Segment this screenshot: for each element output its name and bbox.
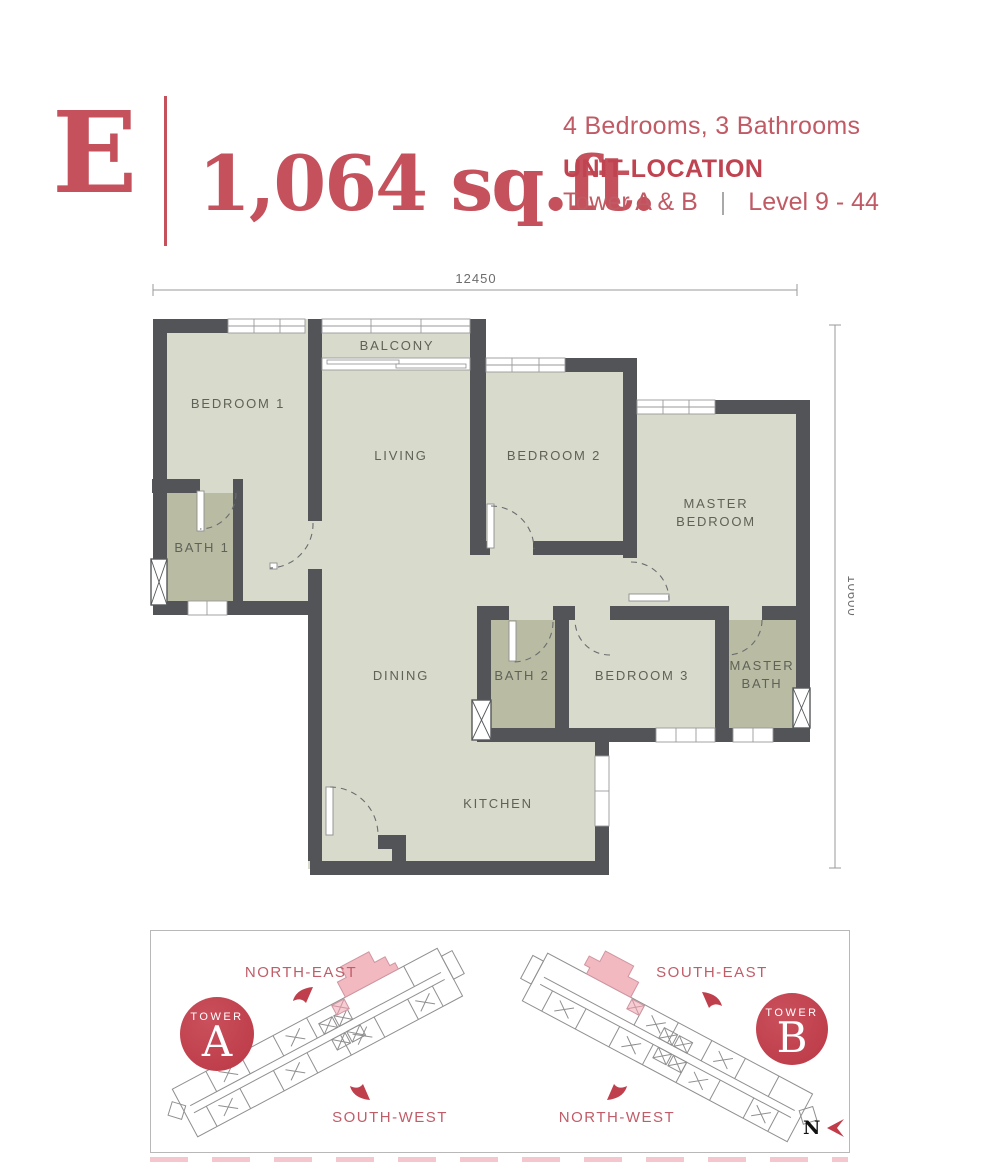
separator: | <box>720 188 727 217</box>
flag-icon-b-nw <box>606 1079 628 1101</box>
room-label-bedroom-1: BEDROOM 1 <box>191 396 285 411</box>
compass-n-label: N <box>803 1117 820 1139</box>
bottom-dashed-accent <box>150 1157 848 1162</box>
direction-label-b-top: SOUTH-EAST <box>602 964 822 981</box>
header-divider <box>164 96 167 246</box>
north-arrow-icon <box>823 1117 845 1139</box>
dimension-width-label: 12450 <box>455 271 496 286</box>
direction-label-b-bottom: NORTH-WEST <box>507 1109 727 1126</box>
floorplan-sheet: E 1,064 sq.ft. 4 Bedrooms, 3 Bathrooms U… <box>0 0 1000 1174</box>
floor-plan: 12450 10600 <box>146 268 854 884</box>
north-compass: N <box>803 1117 845 1139</box>
room-label-bedroom-2: BEDROOM 2 <box>507 448 601 463</box>
header-right: 4 Bedrooms, 3 Bathrooms UNIT LOCATION To… <box>563 112 879 217</box>
flag-icon-b-se <box>701 991 723 1013</box>
room-label-dining: DINING <box>373 668 429 683</box>
room-label-master-bedroom-1: MASTER <box>684 496 749 511</box>
room-label-bath-2: BATH 2 <box>494 668 549 683</box>
sliding-door <box>322 358 470 370</box>
unit-type-letter: E <box>52 98 137 210</box>
bed-bath-count: 4 Bedrooms, 3 Bathrooms <box>563 112 879 141</box>
tower-range: Tower A & B <box>563 188 698 217</box>
tower-b-badge-letter: B <box>756 1019 828 1057</box>
floor-plan-svg: 12450 10600 <box>146 268 854 884</box>
flag-icon-a-sw <box>349 1079 371 1101</box>
room-label-kitchen: KITCHEN <box>463 796 533 811</box>
room-label-master-bath-2: BATH <box>742 676 783 691</box>
level-range: Level 9 - 44 <box>748 188 879 217</box>
flag-icon-a-ne <box>292 986 314 1008</box>
room-label-bedroom-3: BEDROOM 3 <box>595 668 689 683</box>
direction-label-a-top: NORTH-EAST <box>191 964 411 981</box>
tower-a-badge-letter: A <box>180 1023 254 1061</box>
dimension-height-label: 10600 <box>845 575 854 616</box>
room-label-balcony: BALCONY <box>360 338 435 353</box>
room-label-master-bedroom-2: BEDROOM <box>676 514 756 529</box>
tower-level-line: Tower A & B | Level 9 - 44 <box>563 188 879 217</box>
unit-location-heading: UNIT LOCATION <box>563 155 879 184</box>
room-label-master-bath-1: MASTER <box>730 658 795 673</box>
tower-b-badge: TOWER B <box>756 993 828 1065</box>
unit-location-box: NORTH-EAST SOUTH-WEST SOUTH-EAST NORTH-W… <box>150 930 850 1153</box>
direction-label-a-bottom: SOUTH-WEST <box>280 1109 500 1126</box>
room-label-bath-1: BATH 1 <box>174 540 229 555</box>
room-label-living: LIVING <box>374 448 427 463</box>
tower-a-badge: TOWER A <box>180 997 254 1071</box>
